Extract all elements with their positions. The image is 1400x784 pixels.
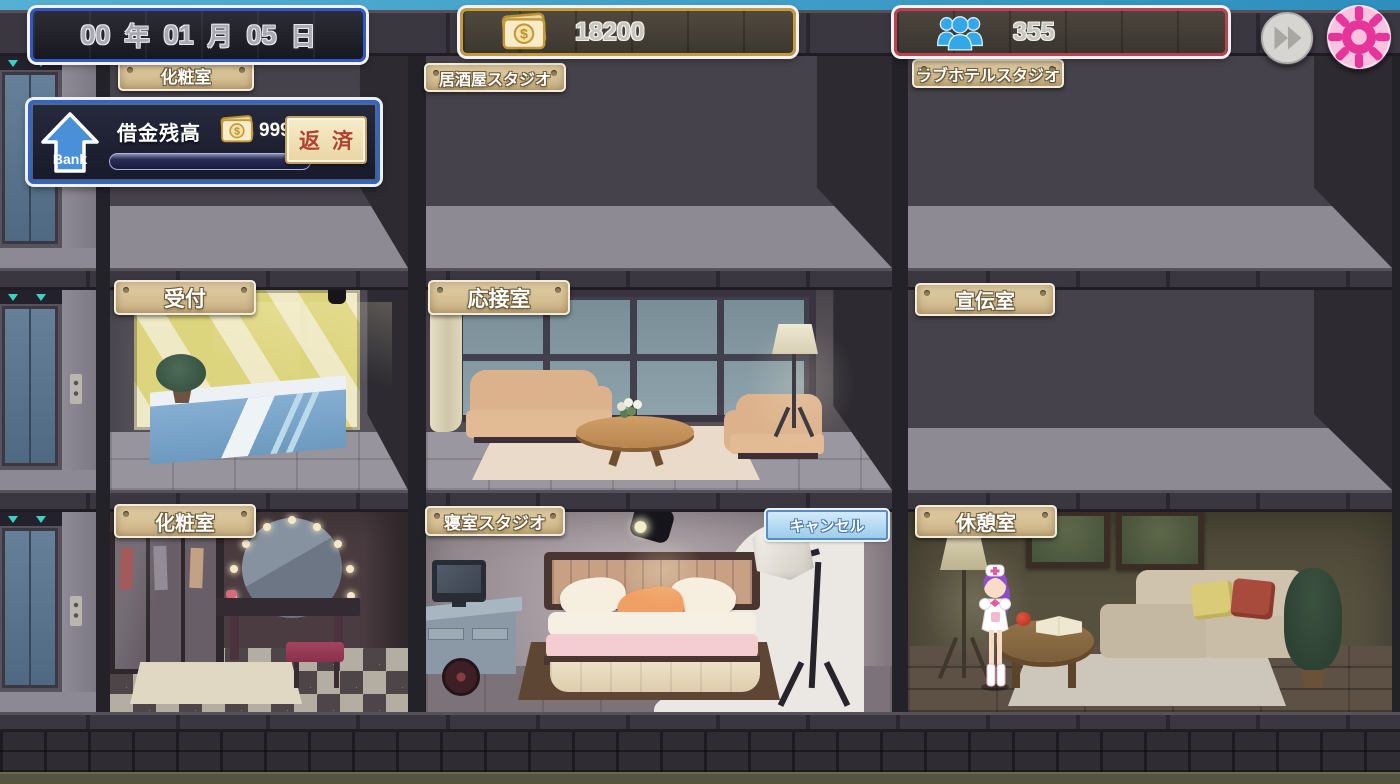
shaft-floor — [0, 692, 96, 712]
lamp-shade — [772, 324, 818, 354]
vanity-table-leg — [230, 614, 239, 660]
population-counter: 355 — [894, 8, 1228, 56]
apple — [1016, 612, 1031, 626]
room-label: 居酒屋スタジオ — [439, 66, 551, 90]
fast-forward-icon — [1260, 11, 1314, 65]
elevator-shaft — [0, 290, 96, 490]
money-icon: $ — [217, 114, 257, 145]
sign-love-hotel-studio[interactable]: ラブホテルスタジオ — [912, 59, 1064, 88]
elevator-button-panel — [70, 596, 82, 626]
plant-bush — [156, 354, 206, 392]
date-day-value: 05 — [247, 20, 277, 51]
open-book — [1036, 616, 1082, 636]
spotlight-lens — [633, 520, 648, 535]
ground-strip — [0, 772, 1400, 784]
wardrobe-clothes — [119, 548, 133, 590]
room-label: 化粧室 — [155, 507, 215, 536]
indicator-triangle-icon — [8, 60, 18, 67]
indicator-triangle-icon — [8, 516, 18, 523]
room-floor — [908, 206, 1392, 268]
room-divider — [1392, 56, 1400, 712]
vanity-bulb — [242, 540, 250, 548]
bank-icon: Bank — [41, 112, 99, 174]
date-month-unit: 月 — [208, 17, 233, 53]
money-symbol: $ — [234, 125, 240, 137]
room-label: 受付 — [164, 283, 206, 313]
picture-frame — [1116, 512, 1204, 570]
game-screen: 化粧室 居酒屋スタジオ ラブホテルスタジオ 受付 応接室 宣伝室 化粧室 寝室ス… — [0, 0, 1400, 784]
elevator-door — [2, 306, 58, 466]
shaft-floor — [0, 470, 96, 490]
room-parlor[interactable] — [426, 290, 892, 490]
sign-dressing-top[interactable]: 化粧室 — [118, 60, 254, 91]
vanity-bulb — [346, 565, 354, 573]
coffee-table — [576, 416, 694, 448]
room-floor — [426, 206, 892, 268]
room-floor — [908, 428, 1392, 490]
ceiling-spotlight-icon — [628, 512, 676, 545]
bank-icon-label: Bank — [53, 151, 87, 167]
wardrobe-clothes — [189, 548, 203, 588]
room-break-room[interactable] — [908, 512, 1392, 712]
sign-publicity[interactable]: 宣伝室 — [915, 283, 1055, 316]
date-day-unit: 日 — [291, 17, 316, 53]
room-label: 化粧室 — [161, 63, 212, 88]
vanity-table — [216, 598, 360, 616]
room-divider — [408, 56, 426, 712]
lamp-pole — [962, 568, 966, 678]
indicator-triangle-icon — [36, 516, 46, 523]
elevator-button-panel — [70, 374, 82, 404]
cosmetic-item — [226, 590, 237, 598]
sign-break-room[interactable]: 休憩室 — [915, 505, 1057, 538]
sign-reception[interactable]: 受付 — [114, 280, 256, 315]
spotlight-icon — [328, 290, 346, 304]
room-reception[interactable] — [110, 290, 408, 490]
stool-seat — [286, 642, 344, 662]
bank-debt-panel: Bank 借金残高 $ 99990000 返済 — [28, 100, 380, 184]
monitor-screen — [437, 565, 481, 593]
sign-parlor[interactable]: 応接室 — [428, 280, 570, 315]
gear-icon — [1326, 4, 1392, 70]
room-divider — [892, 56, 908, 712]
shaft-floor — [0, 248, 96, 268]
table-flowers — [624, 398, 633, 407]
debt-progress-bar — [109, 153, 311, 170]
pillow-red — [1230, 578, 1276, 620]
mattress — [548, 612, 756, 636]
settings-button[interactable] — [1326, 4, 1392, 70]
room-floor — [110, 206, 408, 268]
sign-dressing-bottom[interactable]: 化粧室 — [114, 504, 256, 538]
population-value: 355 — [1013, 18, 1055, 47]
lamp-pole — [792, 352, 796, 428]
nurse-character[interactable] — [976, 562, 1016, 692]
room-label: 宣伝室 — [955, 285, 1015, 314]
money-icon: $ — [497, 11, 551, 53]
money-symbol: $ — [520, 27, 528, 43]
desk-drawer — [428, 628, 464, 640]
curtain — [430, 302, 462, 432]
wardrobe-clothes — [153, 546, 168, 590]
foundation-bricks — [0, 732, 1400, 772]
cancel-button[interactable]: キャンセル — [766, 510, 888, 540]
room-label: 応接室 — [468, 283, 531, 313]
room-label: 寝室スタジオ — [444, 509, 546, 534]
indicator-triangle-icon — [8, 294, 18, 301]
vanity-bulb — [263, 523, 271, 531]
vanity-bulb — [334, 540, 342, 548]
vanity-bulb — [230, 565, 238, 573]
room-label: ラブホテルスタジオ — [916, 62, 1060, 86]
pillow-yellow — [1190, 580, 1236, 621]
stool-leg — [334, 660, 339, 688]
date-year-value: 00 — [80, 20, 110, 51]
room-bedroom-studio[interactable] — [426, 512, 892, 712]
potted-plant — [1284, 568, 1342, 670]
money-value: 18200 — [575, 18, 645, 47]
bed-blanket — [550, 662, 760, 692]
fast-forward-button[interactable] — [1260, 11, 1314, 65]
vanity-bulb — [313, 523, 321, 531]
sign-bedroom-studio[interactable]: 寝室スタジオ — [425, 506, 565, 536]
bed — [544, 552, 760, 694]
cable-reel — [442, 658, 480, 696]
rug — [130, 662, 302, 704]
date-month-value: 01 — [163, 20, 193, 51]
debt-title: 借金残高 — [117, 117, 201, 146]
elevator-indicator — [0, 290, 62, 304]
elevator-shaft — [0, 512, 96, 712]
ground-beam — [0, 712, 1400, 732]
computer-monitor — [432, 560, 486, 602]
room-publicity[interactable] — [908, 290, 1392, 490]
cancel-button-label: キャンセル — [789, 515, 864, 536]
people-icon — [935, 12, 985, 52]
desk-drawer — [472, 628, 508, 640]
repay-button-label: 返済 — [287, 125, 365, 155]
money-counter: $ 18200 — [460, 8, 796, 56]
vanity-bulb — [288, 516, 296, 524]
date-year-unit: 年 — [124, 17, 149, 53]
sofa-right-base — [738, 453, 818, 459]
room-dressing-bottom[interactable] — [110, 512, 408, 712]
indicator-triangle-icon — [36, 294, 46, 301]
elevator-indicator — [0, 512, 62, 526]
repay-button[interactable]: 返済 — [285, 116, 367, 164]
stool-leg — [294, 660, 299, 688]
date-display: 00 年 01 月 05 日 — [30, 8, 366, 62]
sign-izakaya-studio[interactable]: 居酒屋スタジオ — [424, 63, 566, 92]
room-label: 休憩室 — [956, 507, 1016, 536]
bed-sheet-pink — [546, 634, 758, 658]
elevator-door — [2, 528, 58, 688]
